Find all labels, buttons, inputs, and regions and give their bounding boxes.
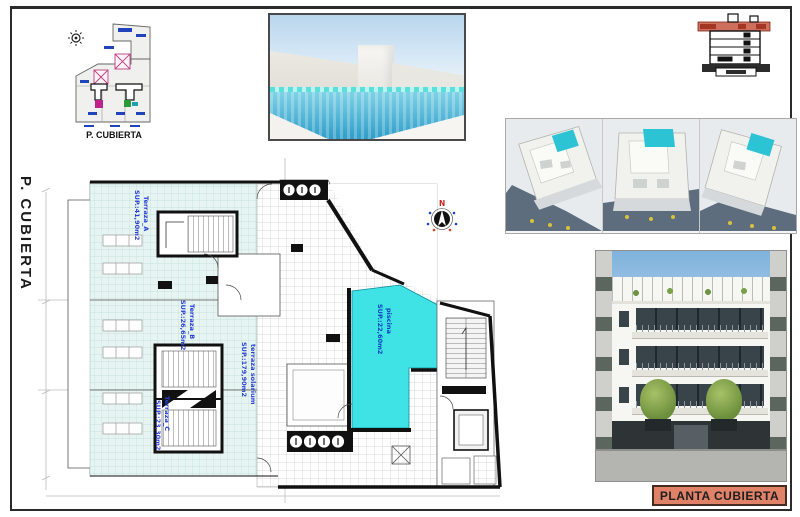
facade-pier-window <box>619 349 629 365</box>
drawing-sheet: P. CUBIERTA <box>0 0 800 517</box>
section-drawing <box>692 6 780 80</box>
label-terraza-c-area: SUP.:23,30m2 <box>154 400 162 450</box>
label-piscina-name: piscina <box>385 308 393 334</box>
key-plan-caption: P. CUBIERTA <box>58 130 170 140</box>
title-block: PLANTA CUBIERTA <box>652 485 787 506</box>
key-plan-drawing <box>58 14 170 128</box>
facade-render-image <box>595 250 787 482</box>
aerial-render-left <box>506 119 603 233</box>
label-solarium-name: terraza solarium <box>249 344 257 405</box>
pool-render-image <box>268 13 466 141</box>
facade-entrance <box>674 425 708 451</box>
aerial-render-right <box>700 119 796 233</box>
section-ground <box>702 64 770 76</box>
facade-main-building <box>612 277 770 451</box>
street-tree <box>706 379 742 421</box>
roof-plan-drawing: Terraza_A SUP.:41,90m2 Terraza_B SUP.:26… <box>38 158 503 503</box>
label-terraza-a-area: SUP.:41,90m2 <box>133 190 141 240</box>
section-roof-highlight <box>698 22 770 31</box>
facade-floor-2 <box>612 343 770 377</box>
compass-north-label: N <box>439 199 445 208</box>
title-block-label: PLANTA CUBIERTA <box>660 489 779 503</box>
tree-planter <box>711 419 737 431</box>
key-plan-outline <box>76 24 150 122</box>
key-plan-thumbnail: P. CUBIERTA <box>58 14 170 140</box>
facade-floor-3 <box>612 305 770 339</box>
facade-pier-window <box>619 387 629 403</box>
building-section-thumbnail <box>692 6 780 80</box>
street-tree <box>640 379 676 421</box>
neighbor-building-left <box>596 251 612 453</box>
neighbor-building-right <box>770 251 786 453</box>
plan-vents-bottom <box>287 431 353 452</box>
facade-pier-window <box>619 311 629 327</box>
label-solarium-area: SUP.:179,90m2 <box>240 342 248 397</box>
facade-slab <box>632 370 768 376</box>
facade-slab <box>632 332 768 338</box>
plan-vents-top <box>280 180 328 200</box>
label-terraza-b-area: SUP.:26,65m2 <box>179 300 187 350</box>
sheet-margin-label: P. CUBIERTA <box>17 176 34 291</box>
label-terraza-a-name: Terraza_A <box>142 196 150 231</box>
sun-icon <box>68 30 84 46</box>
tree-planter <box>645 419 671 431</box>
plan-stair-top <box>158 212 237 256</box>
label-piscina-area: SUP.:22,60m2 <box>376 304 384 354</box>
label-terraza-b-name: Terraza_B <box>188 304 196 339</box>
street-pavement <box>596 449 786 481</box>
facade-roof-terrace <box>612 277 770 304</box>
aerial-renders <box>505 118 797 234</box>
section-building <box>710 14 760 64</box>
aerial-render-center <box>603 119 700 233</box>
facade-floor-1 <box>612 381 770 415</box>
label-terraza-c-name: Terraza_C <box>163 396 171 431</box>
